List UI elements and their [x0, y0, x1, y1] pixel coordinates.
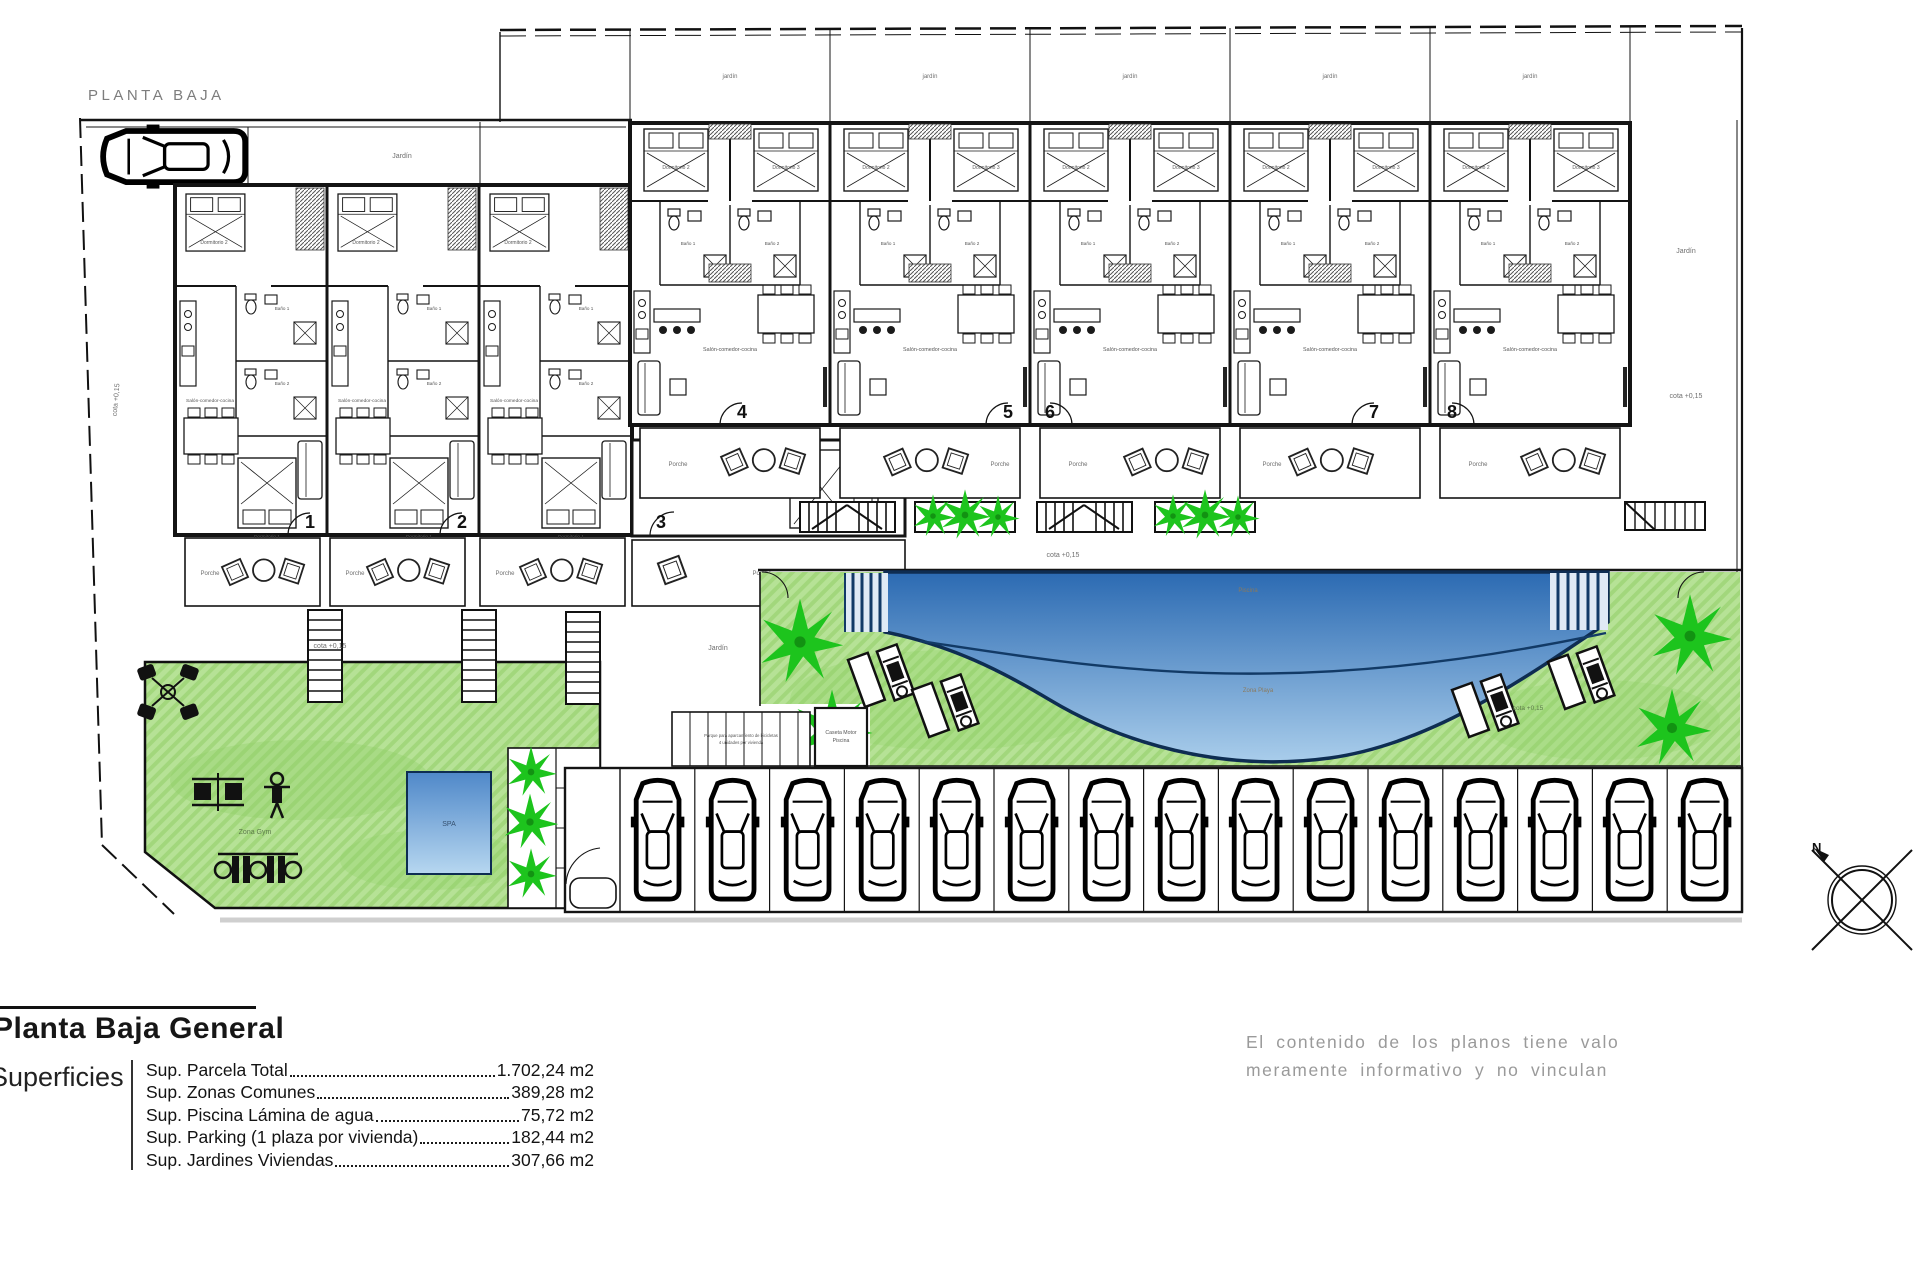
superficies-label: Sup. Parking (1 plaza por vivienda)	[146, 1127, 418, 1148]
unit-number-6: 6	[1045, 402, 1055, 422]
svg-text:Porche: Porche	[345, 571, 365, 577]
zona-playa-label: Zona Playa	[1243, 688, 1274, 694]
dotted-leader	[376, 1120, 519, 1122]
disclaimer-line-1: El contenido de los planos tiene valo	[1246, 1028, 1920, 1056]
unit-number-2: 2	[457, 512, 467, 532]
dotted-leader	[335, 1165, 509, 1167]
unit-number-5: 5	[1003, 402, 1013, 422]
compass: N	[1812, 840, 1912, 950]
superficies-row: Sup. Piscina Lámina de agua 75,72 m2	[146, 1103, 594, 1126]
floor-plan: Dormitorio 2 Dormitorio 3 Baño 1 Baño 2 …	[0, 0, 1920, 1010]
gym-equipment	[192, 773, 244, 811]
unit-number-4: 4	[737, 402, 747, 422]
top-garden-labels: jardín jardín jardín jardín jardín	[721, 74, 1537, 80]
compass-north-label: N	[1812, 840, 1821, 855]
svg-text:jardín: jardín	[921, 74, 937, 80]
svg-text:Caseta Motor: Caseta Motor	[825, 730, 856, 736]
svg-text:Jardín: Jardín	[392, 153, 412, 160]
sheet-title: Planta Baja General	[0, 1012, 284, 1046]
svg-text:Porche: Porche	[668, 462, 688, 468]
dotted-leader	[290, 1075, 495, 1077]
svg-text:Porche: Porche	[1068, 462, 1088, 468]
svg-text:Porche: Porche	[495, 571, 515, 577]
superficies-heading: Superficies	[0, 1062, 124, 1093]
plan-title: PLANTA BAJA	[88, 87, 225, 104]
entry-strip: Jardín	[80, 120, 632, 189]
svg-text:Jardín: Jardín	[708, 645, 728, 652]
pool-garden: Piscina Zona Playa cota +0,15 Parque par…	[672, 570, 1742, 768]
svg-text:jardín: jardín	[1121, 74, 1137, 80]
superficies-label: Sup. Zonas Comunes	[146, 1082, 315, 1103]
superficies-label: Sup. Jardines Viviendas	[146, 1150, 333, 1171]
disclaimer-line-2: meramente informativo y no vinculan	[1246, 1056, 1920, 1084]
svg-text:jardín: jardín	[721, 74, 737, 80]
superficies-row: Sup. Parking (1 plaza por vivienda) 182,…	[146, 1126, 594, 1149]
superficies-row: Sup. Parcela Total 1.702,24 m2	[146, 1058, 594, 1081]
pool-pump-room: Caseta Motor Piscina	[815, 708, 867, 766]
zona-gym-label: Zona Gym	[239, 829, 272, 836]
svg-text:cota +0,15: cota +0,15	[314, 643, 347, 650]
svg-text:Parque para aparcamiento de bi: Parque para aparcamiento de bicicletas	[704, 733, 778, 738]
svg-text:jardín: jardín	[1321, 74, 1337, 80]
right-building: 4 5 6 7 8	[630, 123, 1630, 425]
superficies-table: Sup. Parcela Total 1.702,24 m2 Sup. Zona…	[146, 1058, 594, 1171]
svg-text:Piscina: Piscina	[833, 738, 850, 744]
spa-label: SPA	[442, 821, 456, 828]
unit-number-8: 8	[1447, 402, 1457, 422]
svg-text:cota +0,15: cota +0,15	[1513, 705, 1544, 712]
svg-text:4 unidades por vivienda: 4 unidades por vivienda	[719, 740, 764, 745]
svg-text:cota +0,15: cota +0,15	[112, 383, 122, 416]
svg-text:Porche: Porche	[1468, 462, 1488, 468]
superficies-value: 389,28 m2	[511, 1082, 594, 1103]
svg-text:cota +0,15: cota +0,15	[1670, 393, 1703, 400]
superficies-value: 182,44 m2	[511, 1127, 594, 1148]
unit-number-3: 3	[656, 512, 666, 532]
superficies-row: Sup. Zonas Comunes 389,28 m2	[146, 1081, 594, 1104]
svg-text:Porche: Porche	[200, 571, 220, 577]
superficies-label: Sup. Parcela Total	[146, 1060, 288, 1081]
dotted-leader	[317, 1097, 509, 1099]
dotted-leader	[420, 1142, 509, 1144]
superficies-label: Sup. Piscina Lámina de agua	[146, 1105, 374, 1126]
svg-text:Porche: Porche	[990, 462, 1010, 468]
unit-number-7: 7	[1369, 402, 1379, 422]
unit-number-1: 1	[305, 512, 315, 532]
superficies-value: 1.702,24 m2	[497, 1060, 594, 1081]
title-block-rule	[0, 1006, 256, 1009]
pool-label: Piscina	[1238, 588, 1258, 594]
svg-text:Porche: Porche	[1262, 462, 1282, 468]
svg-text:jardín: jardín	[1521, 74, 1537, 80]
legend-divider	[131, 1060, 133, 1170]
svg-text:Jardín: Jardín	[1676, 248, 1696, 255]
superficies-value: 307,66 m2	[511, 1150, 594, 1171]
superficies-row: Sup. Jardines Viviendas 307,66 m2	[146, 1148, 594, 1171]
svg-text:cota +0,15: cota +0,15	[1047, 552, 1080, 559]
parking-row	[565, 768, 1742, 912]
left-garden: SPA Zona Gym	[136, 662, 600, 908]
disclaimer-text: El contenido de los planos tiene valo me…	[1246, 1028, 1920, 1084]
bike-rack: Parque para aparcamiento de bicicletas 4…	[672, 712, 810, 766]
superficies-value: 75,72 m2	[521, 1105, 594, 1126]
